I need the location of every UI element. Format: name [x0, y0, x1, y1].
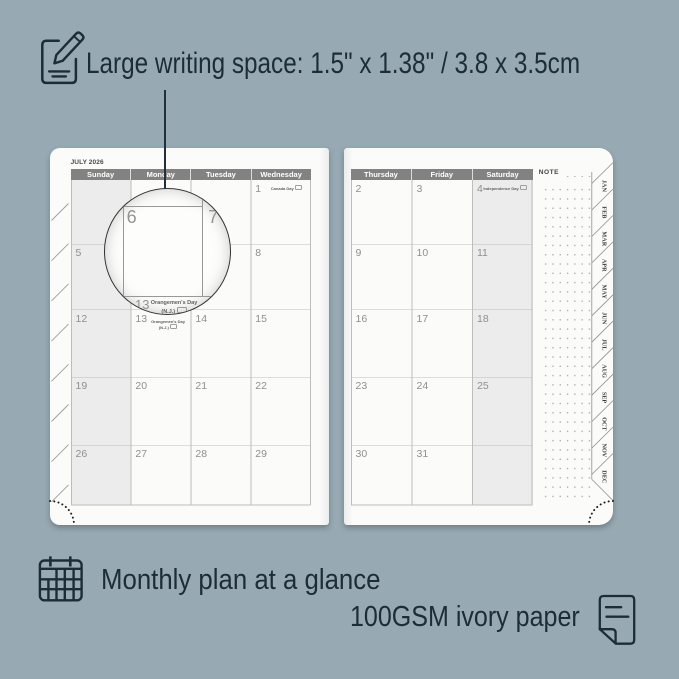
- svg-text:JUN: JUN: [601, 312, 608, 325]
- svg-text:OCT: OCT: [601, 417, 608, 431]
- svg-text:MAR: MAR: [601, 231, 608, 246]
- svg-text:SEP: SEP: [601, 392, 608, 404]
- svg-text:FEB: FEB: [601, 206, 608, 218]
- svg-text:NOV: NOV: [601, 444, 608, 458]
- svg-text:AUG: AUG: [601, 364, 608, 378]
- svg-text:MAY: MAY: [601, 285, 608, 300]
- svg-text:JUL: JUL: [601, 339, 608, 351]
- svg-text:DEC: DEC: [601, 470, 608, 483]
- svg-text:APR: APR: [601, 259, 608, 272]
- svg-text:JAN: JAN: [601, 180, 608, 193]
